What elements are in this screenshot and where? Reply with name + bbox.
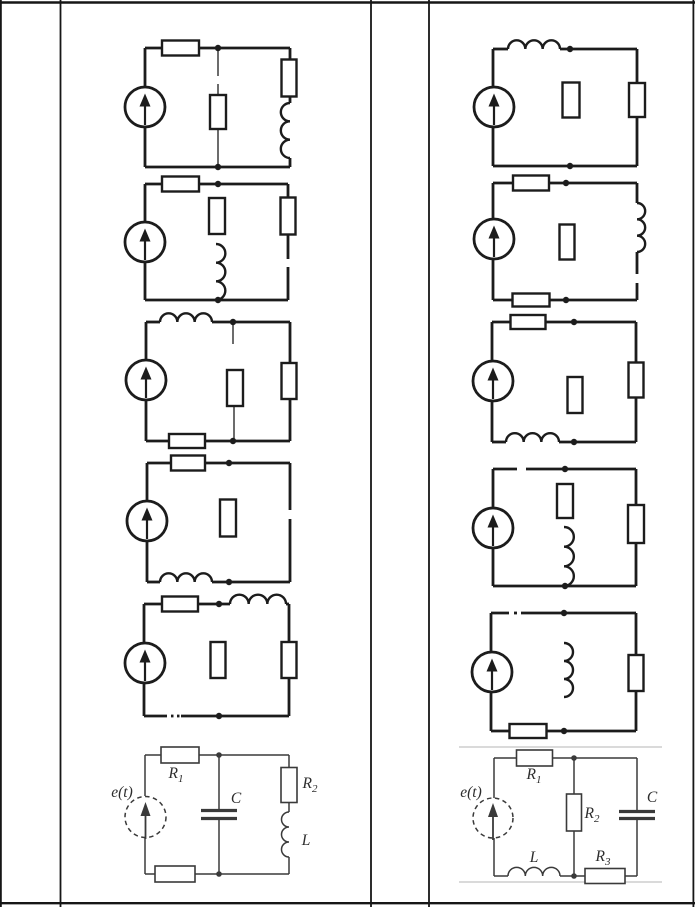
- circuit-left-2: [125, 177, 296, 304]
- circuit-left-4: [127, 456, 293, 586]
- resistor: [563, 83, 580, 118]
- junction-dot: [571, 439, 577, 445]
- resistor: [517, 750, 553, 766]
- component-label: C: [647, 789, 658, 806]
- scanned-document-page: e(t)R1CR2Le(t)R1R2CLR3: [0, 0, 695, 907]
- junction-dot: [215, 297, 221, 303]
- resistor: [162, 41, 199, 56]
- junction-dot: [215, 181, 221, 187]
- resistor: [281, 198, 296, 235]
- junction-dot: [563, 297, 569, 303]
- resistor: [162, 597, 198, 612]
- resistor: [629, 655, 644, 691]
- resistor: [629, 363, 644, 398]
- component-label: R2: [584, 805, 600, 825]
- resistor: [210, 95, 226, 129]
- resistor: [282, 60, 297, 97]
- circuit-left-5: [125, 595, 297, 720]
- resistor: [282, 642, 297, 678]
- resistor: [567, 794, 582, 831]
- resistor: [220, 500, 236, 537]
- inductor: [230, 595, 286, 604]
- inductor: [637, 203, 645, 252]
- inductor: [564, 643, 573, 697]
- component-label: C: [231, 790, 242, 807]
- circuit-left-1: [125, 41, 297, 171]
- resistor: [227, 370, 243, 406]
- inductor: [160, 573, 212, 582]
- junction-dot: [215, 45, 221, 51]
- junction-dot: [561, 728, 567, 734]
- junction-dot: [567, 163, 573, 169]
- junction-dot: [230, 438, 236, 444]
- scan-artifact-gap: [285, 259, 291, 267]
- inductor: [508, 867, 560, 876]
- inductor: [216, 244, 225, 300]
- resistor: [629, 83, 645, 117]
- junction-dot: [563, 180, 569, 186]
- scan-artifact-gap: [517, 465, 526, 473]
- resistor: [568, 377, 583, 413]
- resistor: [155, 866, 195, 882]
- component-label-subscript: 1: [536, 774, 542, 786]
- inductor: [160, 313, 212, 322]
- circuit-right-4: [473, 465, 644, 589]
- resistor: [169, 434, 205, 448]
- junction-dot: [226, 579, 232, 585]
- inductor: [282, 812, 289, 857]
- component-label: R1: [168, 765, 184, 785]
- component-label: e(t): [460, 784, 482, 801]
- component-label: e(t): [111, 784, 133, 801]
- inductor: [564, 527, 574, 586]
- junction-dot: [567, 46, 573, 52]
- circuit-left-3: [126, 313, 297, 448]
- component-label-subscript: 1: [178, 773, 184, 785]
- circuit-right-6: e(t)R1R2CLR3: [459, 747, 662, 884]
- junction-dot: [216, 713, 222, 719]
- resistor: [162, 177, 199, 192]
- resistor: [211, 642, 226, 678]
- resistor: [282, 363, 297, 399]
- junction-dot: [571, 319, 577, 325]
- circuit-table-svg: e(t)R1CR2Le(t)R1R2CLR3: [0, 0, 695, 907]
- junction-dot: [561, 610, 567, 616]
- inductor: [506, 433, 559, 442]
- resistor: [513, 294, 550, 307]
- junction-dot: [571, 873, 577, 879]
- junction-dot: [571, 755, 577, 761]
- junction-dot: [226, 460, 232, 466]
- circuit-right-5: [472, 609, 644, 738]
- resistor: [281, 768, 297, 803]
- resistor: [510, 724, 547, 738]
- inductor: [281, 103, 290, 158]
- scan-artifact-gap: [634, 274, 640, 283]
- junction-dot: [230, 319, 236, 325]
- junction-dot: [216, 871, 222, 877]
- junction-dot: [562, 583, 568, 589]
- component-label-subscript: 2: [312, 783, 318, 795]
- component-label: R2: [302, 775, 318, 795]
- resistor: [628, 505, 644, 543]
- resistor: [511, 315, 546, 329]
- inductor: [508, 40, 560, 49]
- component-label: R1: [526, 766, 542, 786]
- component-label: L: [301, 832, 311, 849]
- circuit-right-1: [474, 40, 645, 169]
- resistor: [585, 869, 625, 884]
- resistor: [557, 484, 573, 518]
- circuit-right-2: [474, 176, 645, 307]
- scan-artifact-gap: [287, 510, 293, 519]
- resistor: [560, 225, 575, 260]
- component-label: R3: [595, 848, 611, 868]
- junction-dot: [216, 601, 222, 607]
- circuit-right-3: [473, 315, 644, 445]
- junction-dot: [562, 466, 568, 472]
- junction-dot: [215, 164, 221, 170]
- resistor: [171, 456, 205, 471]
- circuit-left-6: e(t)R1CR2L: [111, 747, 318, 882]
- resistor: [161, 747, 199, 763]
- component-label-subscript: 2: [594, 813, 600, 825]
- component-label-subscript: 3: [604, 856, 611, 868]
- resistor: [209, 198, 225, 234]
- resistor: [513, 176, 549, 191]
- component-label: L: [529, 849, 539, 866]
- junction-dot: [216, 752, 222, 758]
